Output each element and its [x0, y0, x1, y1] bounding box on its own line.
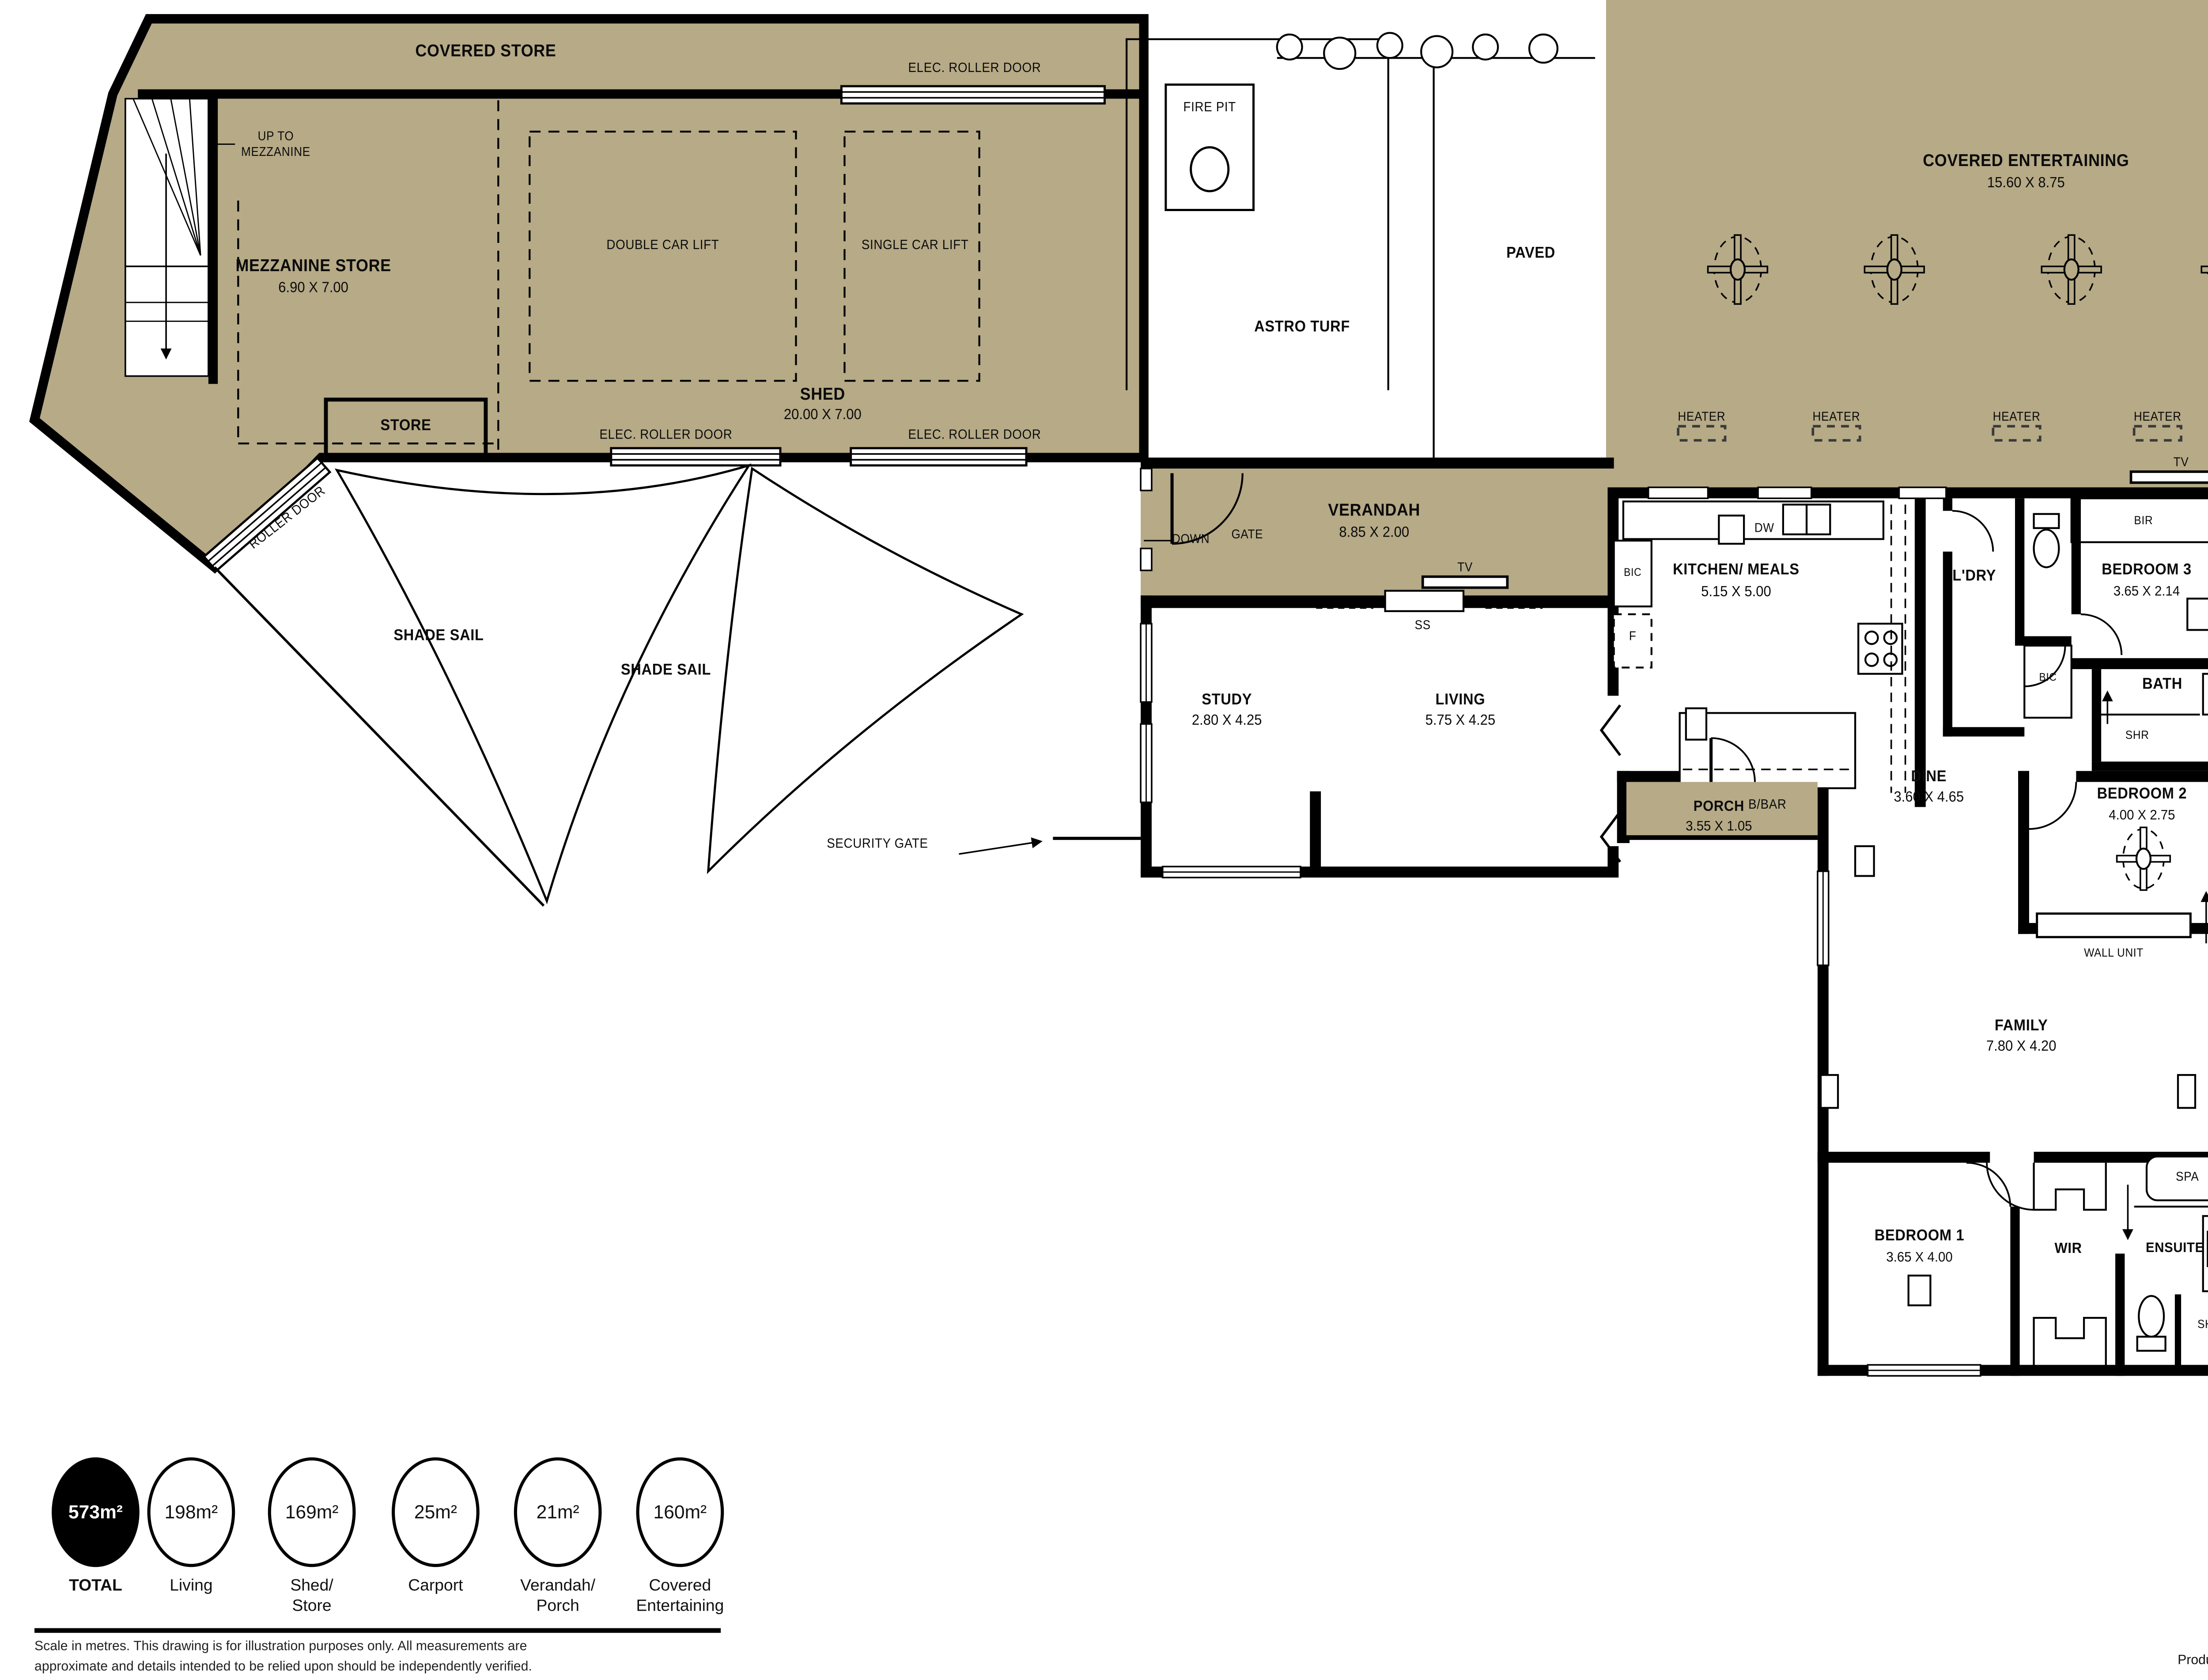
tv-unit-verandah [1423, 577, 1508, 588]
disclaimer-text: Scale in metres. This drawing is for ill… [34, 1636, 532, 1676]
legend-circle: 169m² [268, 1457, 356, 1567]
label-dine-dims: 3.60 X 4.65 [1894, 789, 1964, 806]
legend-circle: 160m² [636, 1457, 724, 1567]
wir-robe-bottom [2034, 1318, 2106, 1365]
bedroom3-pier [2187, 598, 2208, 630]
dishwasher-icon [1719, 515, 1744, 544]
toilet-icon-wc [2034, 514, 2059, 568]
legend-item-covered-entertaining: 160m² CoveredEntertaining [617, 1457, 743, 1618]
label-bedroom3: BEDROOM 3 [2102, 562, 2192, 579]
label-elec-roller-door-top: ELEC. ROLLER DOOR [908, 60, 1041, 75]
label-kitchen-meals-dims: 5.15 X 5.00 [1701, 584, 1771, 601]
label-porch-dims: 3.55 X 1.05 [1686, 818, 1752, 833]
label-ensuite: ENSUITE [2146, 1240, 2204, 1255]
footer-divider [34, 1628, 721, 1633]
legend-label: Verandah/ [520, 1576, 595, 1595]
shade-sail-1 [337, 465, 749, 901]
label-bic-kitchen: BIC [1624, 568, 1641, 579]
disclaimer-line1: Scale in metres. This drawing is for ill… [34, 1638, 527, 1653]
label-security-gate: SECURITY GATE [827, 835, 928, 851]
kitchen-fixtures [1614, 501, 2072, 793]
legend-value: 573m² [68, 1501, 123, 1523]
label-heater-4: HEATER [2134, 410, 2182, 424]
label-shed-dims: 20.00 X 7.00 [784, 407, 862, 424]
label-ldry: L'DRY [1952, 568, 1996, 585]
window [1648, 487, 1946, 498]
label-kitchen-meals: KITCHEN/ MEALS [1673, 562, 1800, 579]
label-study-dims: 2.80 X 4.25 [1192, 712, 1262, 730]
label-covered-entertaining-dims: 15.60 X 8.75 [1987, 175, 2065, 192]
label-double-car-lift: DOUBLE CAR LIFT [606, 237, 719, 252]
floorplan-page: COVERED STORE ELEC. ROLLER DOOR UP TO ME… [0, 0, 2208, 1680]
label-verandah-dims: 8.85 X 2.00 [1339, 524, 1409, 541]
legend-label: Entertaining [636, 1597, 724, 1616]
label-bir: BIR [2134, 513, 2153, 527]
legend-label: Carport [408, 1576, 463, 1595]
wall-unit-shape [2037, 914, 2191, 937]
toilet-icon-ensuite [2137, 1296, 2166, 1351]
kitchen-bench [1623, 501, 1883, 539]
cooktop-icon [1858, 624, 1902, 674]
label-bbar: B/BAR [1748, 796, 1787, 811]
legend-circle: 25m² [392, 1457, 480, 1567]
legend-label: Shed/ [290, 1576, 333, 1595]
label-astro-turf: ASTRO TURF [1254, 319, 1350, 336]
shade-sail-shapes [215, 465, 1141, 906]
label-bedroom2-dims: 4.00 X 2.75 [2109, 807, 2175, 822]
tv-unit-entertaining [2131, 472, 2208, 483]
elec-roller-door-hatch-left [611, 448, 780, 465]
label-paved: PAVED [1506, 245, 1555, 262]
label-shr-ensuite: SHR [2197, 1317, 2208, 1331]
legend-label: TOTAL [69, 1576, 122, 1595]
label-ss: SS [1415, 618, 1431, 632]
legend-value: 25m² [414, 1501, 457, 1523]
label-bedroom2: BEDROOM 2 [2097, 786, 2187, 803]
legend-value: 169m² [285, 1501, 339, 1523]
label-bedroom1-dims: 3.65 X 4.00 [1886, 1249, 1952, 1264]
legend-value: 198m² [165, 1501, 218, 1523]
label-heater-3: HEATER [1993, 410, 2041, 424]
legend-value: 160m² [654, 1501, 707, 1523]
label-family: FAMILY [1995, 1018, 2048, 1035]
label-spa: SPA [2176, 1170, 2199, 1184]
label-wir: WIR [2054, 1240, 2082, 1257]
label-living: LIVING [1436, 692, 1486, 709]
label-tv-entertaining: TV [2174, 455, 2189, 469]
label-single-car-lift: SINGLE CAR LIFT [862, 237, 969, 252]
elec-roller-door-hatch-right [851, 448, 1026, 465]
label-living-dims: 5.75 X 4.25 [1425, 712, 1496, 730]
label-mezzanine-store: MEZZANINE STORE [235, 257, 391, 276]
label-up-to: UP TO [258, 129, 294, 144]
produced-by: Produced by The Fotobase Group [2178, 1652, 2208, 1667]
legend-label: Covered [649, 1576, 711, 1595]
label-up-to-mezzanine: MEZZANINE [241, 145, 310, 159]
security-gate-arrow [959, 838, 1141, 854]
label-wall-unit: WALL UNIT [2084, 946, 2144, 960]
legend-label: Porch [536, 1597, 579, 1616]
elec-roller-door-hatch-top [841, 86, 1104, 103]
legend-value: 21m² [537, 1501, 579, 1523]
label-bic-hall: BIC [2039, 673, 2057, 684]
label-mezzanine-store-dims: 6.90 X 7.00 [278, 280, 348, 297]
wir-robe-top [2034, 1163, 2106, 1210]
legend-item-carport: 25m² Carport [373, 1457, 498, 1597]
label-gate: GATE [1231, 527, 1263, 541]
label-tv-verandah: TV [1457, 560, 1473, 574]
disclaimer-line2: approximate and details intended to be r… [34, 1657, 532, 1673]
legend-item-verandah-porch: 21m² Verandah/Porch [495, 1457, 620, 1618]
label-store: STORE [380, 418, 431, 435]
label-fire-pit: FIRE PIT [1183, 99, 1236, 114]
label-fridge: F [1629, 629, 1637, 643]
legend-item-shed-store: 169m² Shed/Store [249, 1457, 374, 1618]
label-dw: DW [1754, 521, 1774, 535]
label-porch: PORCH [1694, 798, 1744, 816]
label-dine: DINE [1911, 768, 1947, 786]
shade-sail-2 [708, 469, 1022, 871]
legend-circle: 21m² [514, 1457, 602, 1567]
produced-by-prefix: Produced by [2178, 1652, 2208, 1667]
label-shade-sail-1: SHADE SAIL [393, 628, 484, 645]
label-heater-1: HEATER [1678, 410, 1725, 424]
label-covered-entertaining: COVERED ENTERTAINING [1923, 152, 2129, 171]
legend-item-living: 198m² Living [129, 1457, 254, 1597]
label-study: STUDY [1202, 692, 1252, 709]
label-heater-2: HEATER [1813, 410, 1860, 424]
label-family-dims: 7.80 X 4.20 [1986, 1038, 2057, 1056]
bedroom2-fan-icon [2117, 827, 2170, 890]
legend-label: Living [170, 1576, 212, 1595]
legend-circle-total: 573m² [52, 1457, 140, 1567]
label-bedroom3-dims: 3.65 X 2.14 [2113, 583, 2180, 598]
label-shed: SHED [800, 386, 845, 405]
ss-stacker-door [1385, 591, 1463, 611]
label-shr-bath: SHR [2125, 728, 2149, 742]
sink-icon [1783, 505, 1830, 534]
label-bedroom1: BEDROOM 1 [1875, 1228, 1965, 1245]
label-bath: BATH [2142, 676, 2182, 693]
label-elec-roller-door-left: ELEC. ROLLER DOOR [599, 426, 732, 442]
label-covered-store: COVERED STORE [415, 42, 556, 61]
label-shade-sail-2: SHADE SAIL [621, 662, 711, 679]
label-down: DOWN [1172, 532, 1210, 546]
label-verandah: VERANDAH [1328, 501, 1420, 520]
shed-area [34, 19, 1144, 571]
legend-circle: 198m² [147, 1457, 235, 1567]
floorplan-drawing [0, 0, 2208, 1680]
legend-label: Store [292, 1597, 332, 1616]
label-elec-roller-door-right: ELEC. ROLLER DOOR [908, 426, 1041, 442]
bath-vanity-unit [2203, 674, 2208, 715]
